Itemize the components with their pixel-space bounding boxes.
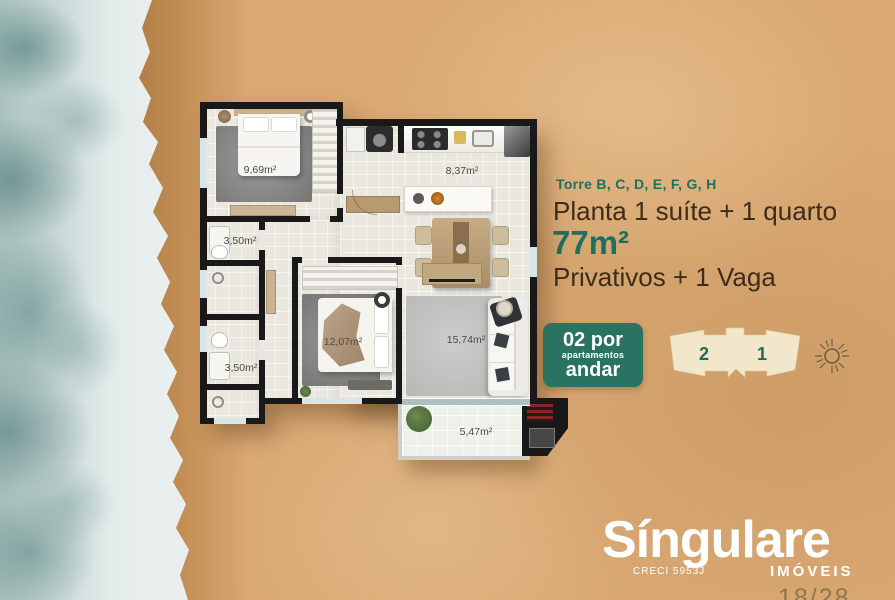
blanket-fold xyxy=(238,146,300,148)
wall xyxy=(200,260,265,266)
wall xyxy=(330,216,343,222)
plan-subtitle: Privativos + 1 Vaga xyxy=(553,262,776,293)
footprint-unit-1: 1 xyxy=(757,344,767,364)
counter-item xyxy=(454,131,466,144)
kitchen-island xyxy=(404,186,492,212)
window xyxy=(200,326,207,352)
pillow xyxy=(271,117,297,132)
units-per-floor-badge: 02 por apartamentos andar xyxy=(543,323,643,387)
laundry-tub xyxy=(346,127,365,152)
basket xyxy=(218,110,231,123)
sun-icon xyxy=(812,336,852,376)
wall xyxy=(396,257,402,265)
brand-segment: IMÓVEIS xyxy=(770,563,854,580)
building-footprint-diagram: 2 1 xyxy=(664,320,806,388)
badge-line1: 02 por xyxy=(563,330,623,350)
plate xyxy=(456,244,466,254)
wall xyxy=(398,119,404,153)
plant-icon xyxy=(406,406,432,432)
sofa-pillow xyxy=(495,367,510,382)
wall xyxy=(259,222,265,424)
wall xyxy=(328,257,402,263)
bowl xyxy=(413,193,424,204)
balcony-glass-door xyxy=(402,398,530,406)
grill-icon xyxy=(527,404,553,422)
bedroom-bed xyxy=(318,298,392,372)
towers-line: Torre B, C, D, E, F, G, H xyxy=(556,176,716,192)
plan-area: 77m² xyxy=(552,224,629,262)
pillow xyxy=(374,336,389,368)
toilet xyxy=(211,245,228,259)
chair xyxy=(492,258,509,277)
chair xyxy=(492,226,509,245)
fruit-bowl xyxy=(431,192,444,205)
wall xyxy=(200,216,310,222)
plant-icon xyxy=(300,386,311,397)
bbq-oven xyxy=(529,428,555,448)
room-label-living: 15,74m² xyxy=(447,334,486,346)
chair xyxy=(415,226,432,245)
door-gap xyxy=(259,340,265,360)
side-table xyxy=(496,300,513,317)
room-label-suite: 9,69m² xyxy=(244,164,277,176)
cooktop xyxy=(412,128,448,150)
sofa-seam xyxy=(490,362,514,363)
room-label-social-bath: 3,50m² xyxy=(225,362,258,374)
window xyxy=(200,270,207,298)
room-label-suite-bath: 3,50m² xyxy=(224,235,257,247)
shower-icon xyxy=(212,272,224,284)
floorplan: 9,69m² 3,50m² 3,50m² 8,37m² 12,07m² 15,7… xyxy=(200,100,576,468)
wall xyxy=(200,384,265,390)
wall xyxy=(396,288,402,404)
washer xyxy=(366,126,393,152)
wall xyxy=(292,257,302,263)
wall xyxy=(200,102,343,109)
window xyxy=(302,398,362,404)
suite-wardrobe xyxy=(312,109,339,193)
bed-bench xyxy=(348,380,392,390)
bedroom-wardrobe xyxy=(302,266,398,290)
window xyxy=(200,138,207,188)
badge-line3: andar xyxy=(566,360,620,380)
hall-console xyxy=(266,270,276,314)
room-label-kitchen: 8,37m² xyxy=(446,165,479,177)
suite-dresser xyxy=(230,205,296,216)
plan-title: Planta 1 suíte + 1 quarto xyxy=(553,196,837,227)
marketing-page: 9,69m² 3,50m² 3,50m² 8,37m² 12,07m² 15,7… xyxy=(0,0,895,600)
wall xyxy=(292,257,298,404)
wall xyxy=(200,314,265,320)
window xyxy=(214,418,246,424)
tv-sideboard xyxy=(422,263,482,285)
bedroom-lamp xyxy=(374,292,390,308)
toilet xyxy=(211,332,228,348)
wall xyxy=(336,119,536,126)
shower-icon xyxy=(212,396,224,408)
fridge xyxy=(504,126,530,157)
kitchen-sink xyxy=(472,130,494,147)
tv xyxy=(429,279,475,282)
wall xyxy=(337,102,343,194)
brand-logo: Síngulare xyxy=(602,510,830,570)
footprint-unit-2: 2 xyxy=(699,344,709,364)
page-indicator: 18/28 xyxy=(778,584,851,600)
brand-creci: CRECI 5953J xyxy=(633,566,705,577)
door-gap xyxy=(259,230,265,250)
window xyxy=(530,247,537,277)
room-label-bedroom: 12,07m² xyxy=(324,336,363,348)
pillow xyxy=(243,117,269,132)
footprint-shape xyxy=(670,328,800,377)
room-label-balcony: 5,47m² xyxy=(460,426,493,438)
bed-blanket xyxy=(320,302,372,368)
